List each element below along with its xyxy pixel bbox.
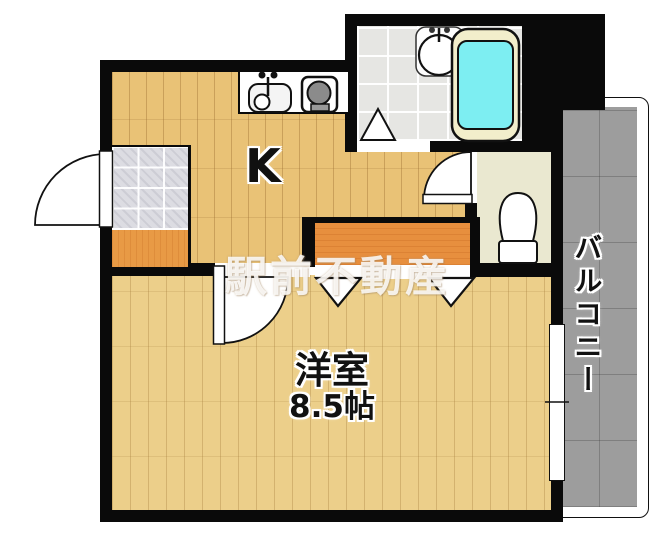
main-room-size: 8.5帖 <box>232 391 432 424</box>
bathroom-door-triangle-icon <box>361 109 395 140</box>
main-room-name: 洋室 <box>232 352 432 391</box>
balcony-label: バルコニー <box>572 230 601 400</box>
watermark: 駅前不動産 <box>170 243 505 304</box>
floor-plan: K 洋室 8.5帖 バルコニー 駅前不動産 <box>0 0 671 541</box>
main-room-label: 洋室 8.5帖 <box>232 352 432 423</box>
kitchen-sink-icon <box>249 72 291 113</box>
toilet-door <box>423 152 472 204</box>
entrance-door <box>35 151 113 227</box>
kitchen-label: K <box>233 142 293 190</box>
gas-stove-icon <box>302 77 337 112</box>
bathtub-icon <box>452 29 519 141</box>
